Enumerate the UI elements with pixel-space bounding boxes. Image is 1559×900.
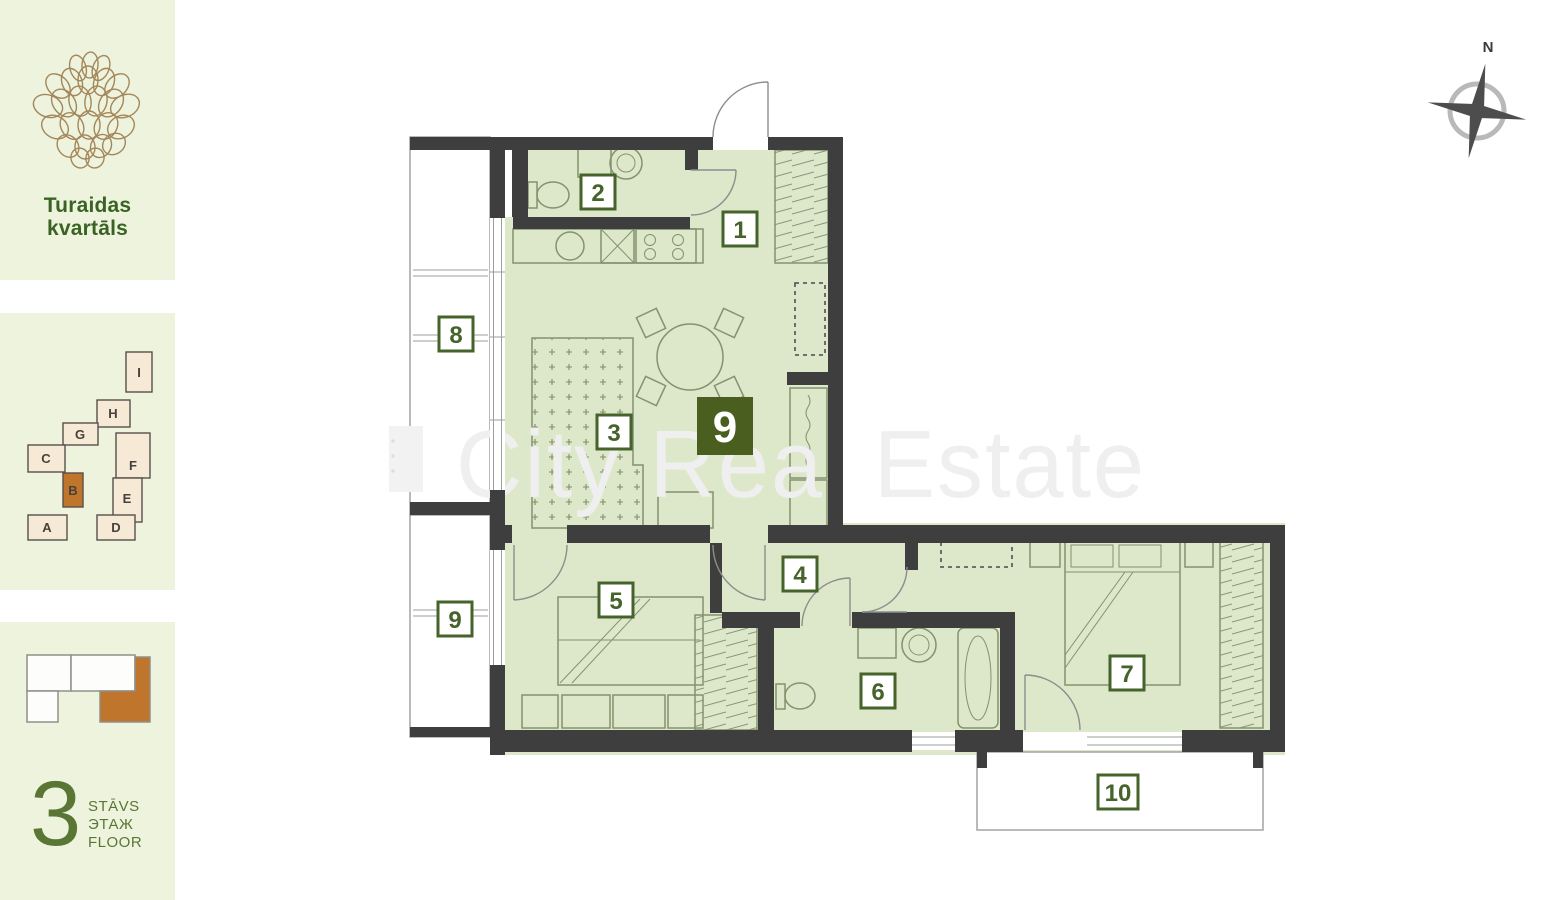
svg-text:4: 4 [793, 562, 807, 589]
room-label-1: 1 [723, 212, 757, 246]
room-label-2: 2 [581, 175, 615, 209]
apartment-number-badge: 9 [697, 397, 753, 455]
balcony-label-10: 10 [1098, 775, 1138, 809]
floor-plan: City Real Estate [0, 0, 1559, 900]
svg-text:5: 5 [609, 588, 622, 615]
compass-star-icon [1419, 55, 1534, 167]
entry-door-opening [713, 137, 768, 150]
wardrobe-icon [775, 150, 828, 263]
compass-north-label: N [1483, 39, 1494, 56]
entry-door-icon [713, 82, 768, 137]
room-label-5: 5 [599, 583, 633, 617]
room-label-3: 3 [597, 415, 631, 449]
svg-text:8: 8 [449, 322, 462, 349]
wardrobe-icon [1220, 540, 1263, 728]
svg-text:1: 1 [733, 217, 746, 244]
svg-text:10: 10 [1105, 780, 1132, 807]
svg-text:2: 2 [591, 180, 604, 207]
balcony-door-opening [1023, 732, 1087, 750]
svg-text:7: 7 [1120, 661, 1133, 688]
room-label-6: 6 [861, 674, 895, 708]
room-label-4: 4 [783, 557, 817, 591]
compass: N [1419, 39, 1534, 167]
balcony-label-9: 9 [438, 602, 472, 636]
watermark-logo [389, 426, 423, 492]
watermark-text: City Real Estate [456, 411, 1146, 518]
window-living-room [490, 218, 505, 490]
svg-text:9: 9 [448, 607, 461, 634]
svg-text:3: 3 [607, 420, 620, 447]
balcony-label-8: 8 [439, 317, 473, 351]
window-bedroom-7 [1087, 732, 1182, 750]
window-bedroom-5 [490, 550, 505, 665]
svg-text:6: 6 [871, 679, 884, 706]
room-label-7: 7 [1110, 656, 1144, 690]
svg-text:9: 9 [713, 403, 737, 452]
wardrobe-icon [695, 615, 757, 730]
window-bathroom-6 [912, 732, 955, 750]
